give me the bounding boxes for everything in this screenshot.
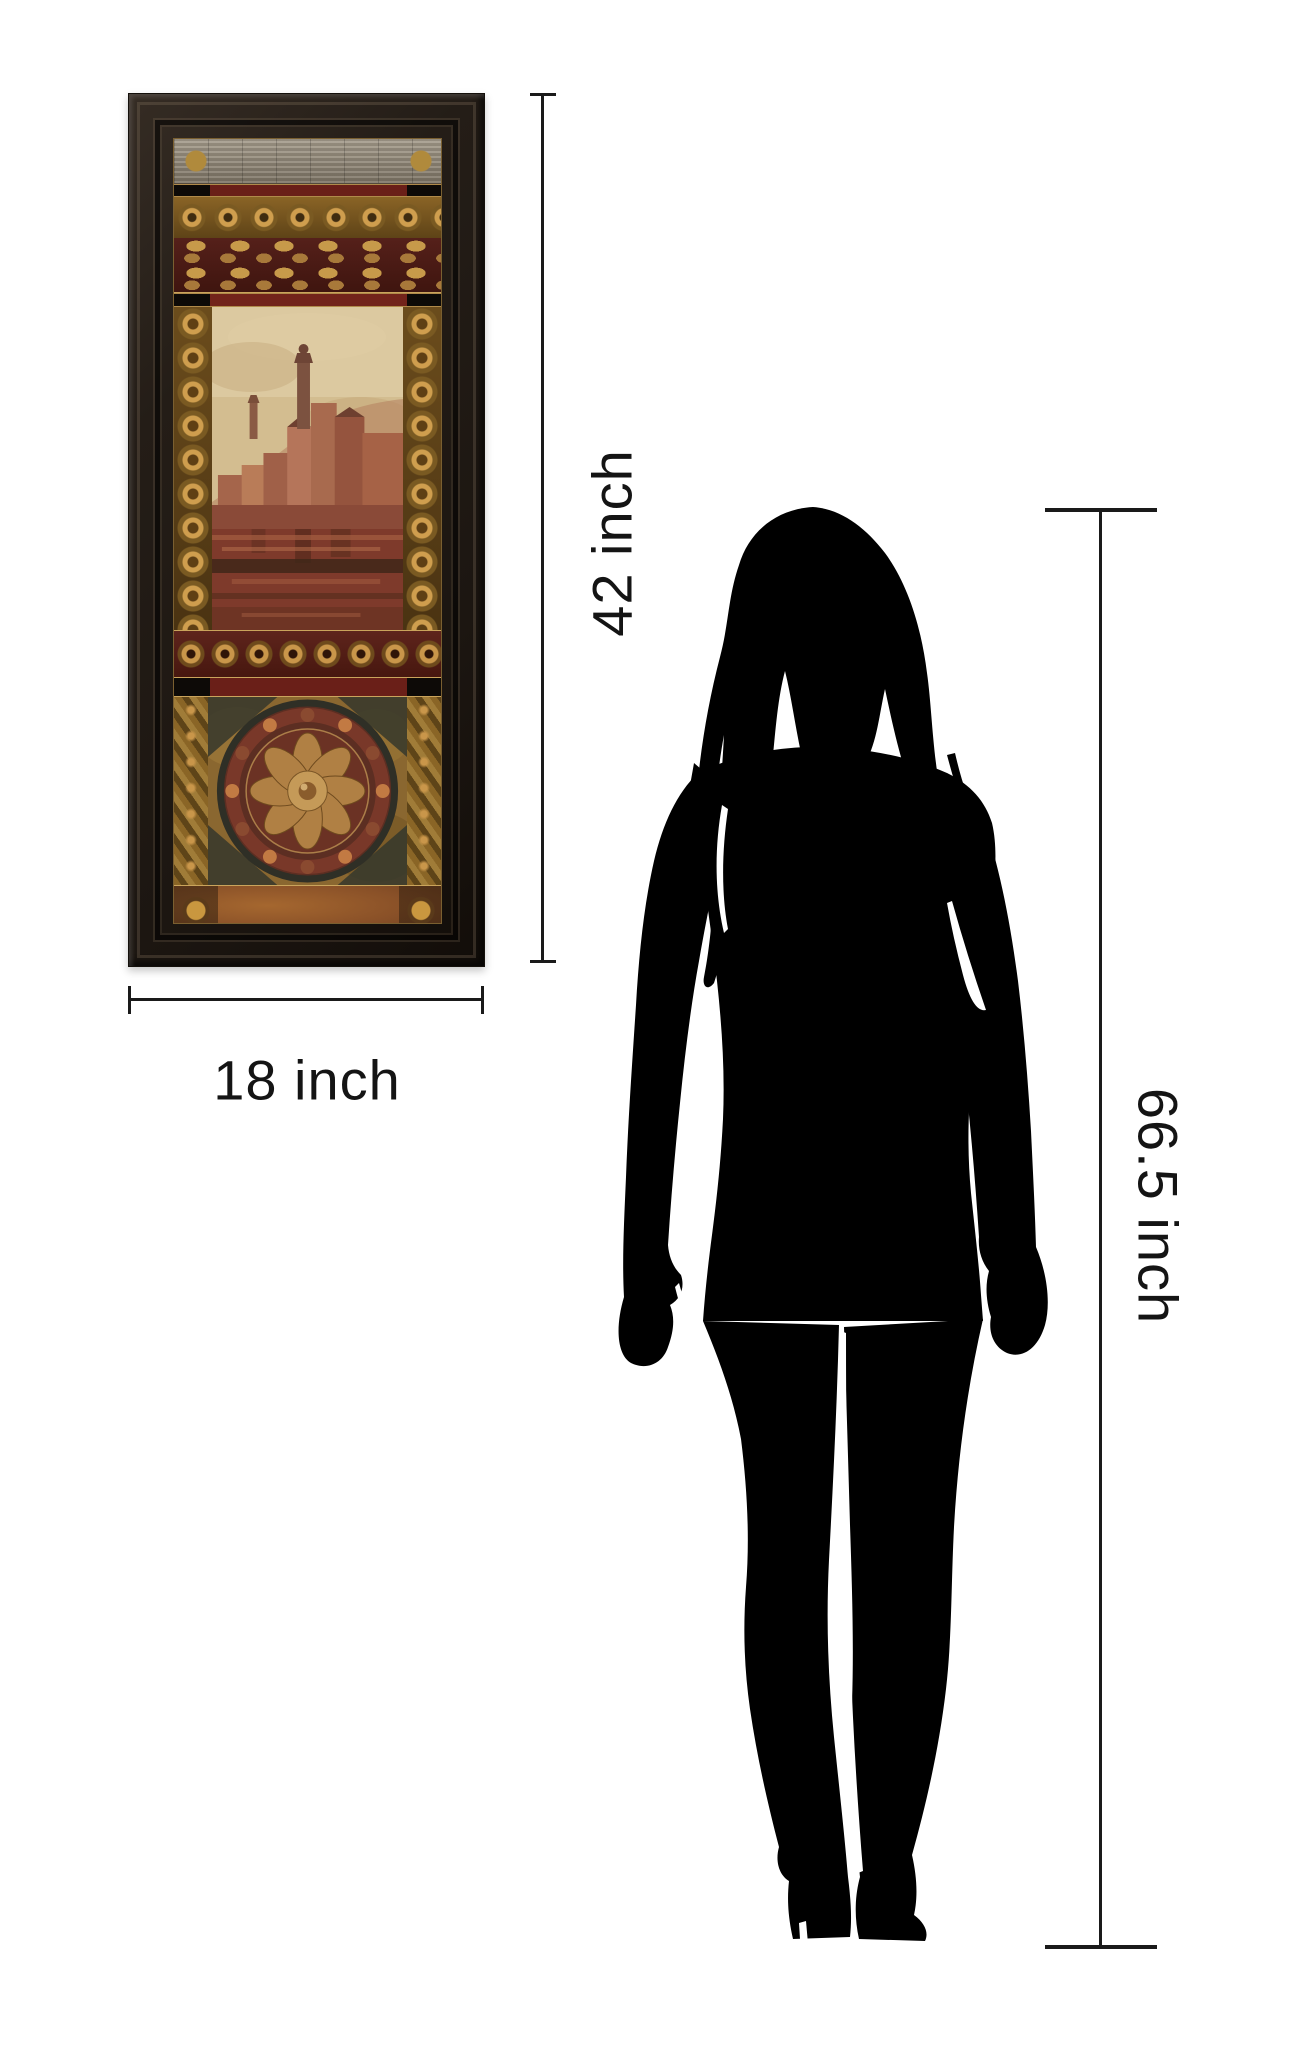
cityscape-painting — [212, 307, 403, 630]
person-height-dimension-line — [1099, 511, 1102, 1948]
rosette-medallion — [208, 697, 407, 885]
artwork-height-top-cap — [530, 93, 556, 96]
art-band-red-divider-top — [174, 184, 441, 197]
person-height-label: 66.5 inch — [1126, 1088, 1191, 1324]
gold-scallop-strip-left — [174, 307, 212, 630]
art-center-panel — [174, 307, 441, 630]
art-band-gold-vine — [174, 630, 441, 677]
gold-leaf-column-left — [174, 697, 208, 885]
art-band-red-divider-lower — [174, 677, 441, 697]
art-print-surface — [173, 138, 442, 924]
gold-leaf-column-right — [407, 697, 441, 885]
size-comparison-image: 42 inch 18 inch 66.5 inch — [0, 0, 1296, 2048]
artwork-width-right-cap — [481, 986, 484, 1014]
art-band-copper-base — [174, 885, 441, 924]
artwork-width-left-cap — [128, 986, 131, 1014]
artwork-height-bottom-cap — [530, 960, 556, 963]
gold-scallop-strip-right — [403, 307, 441, 630]
art-band-gold-circle-scroll — [174, 197, 441, 238]
artwork-height-dimension-line — [541, 93, 544, 963]
artwork-width-label: 18 inch — [213, 1048, 401, 1113]
artwork-width-dimension-line — [128, 998, 484, 1001]
framed-art-print — [128, 93, 485, 967]
art-medallion-panel — [174, 697, 441, 885]
woman-silhouette — [595, 505, 1065, 1955]
art-band-red-divider-upper — [174, 293, 441, 307]
art-band-damask — [174, 238, 441, 293]
art-band-silver-engraved — [174, 139, 441, 184]
